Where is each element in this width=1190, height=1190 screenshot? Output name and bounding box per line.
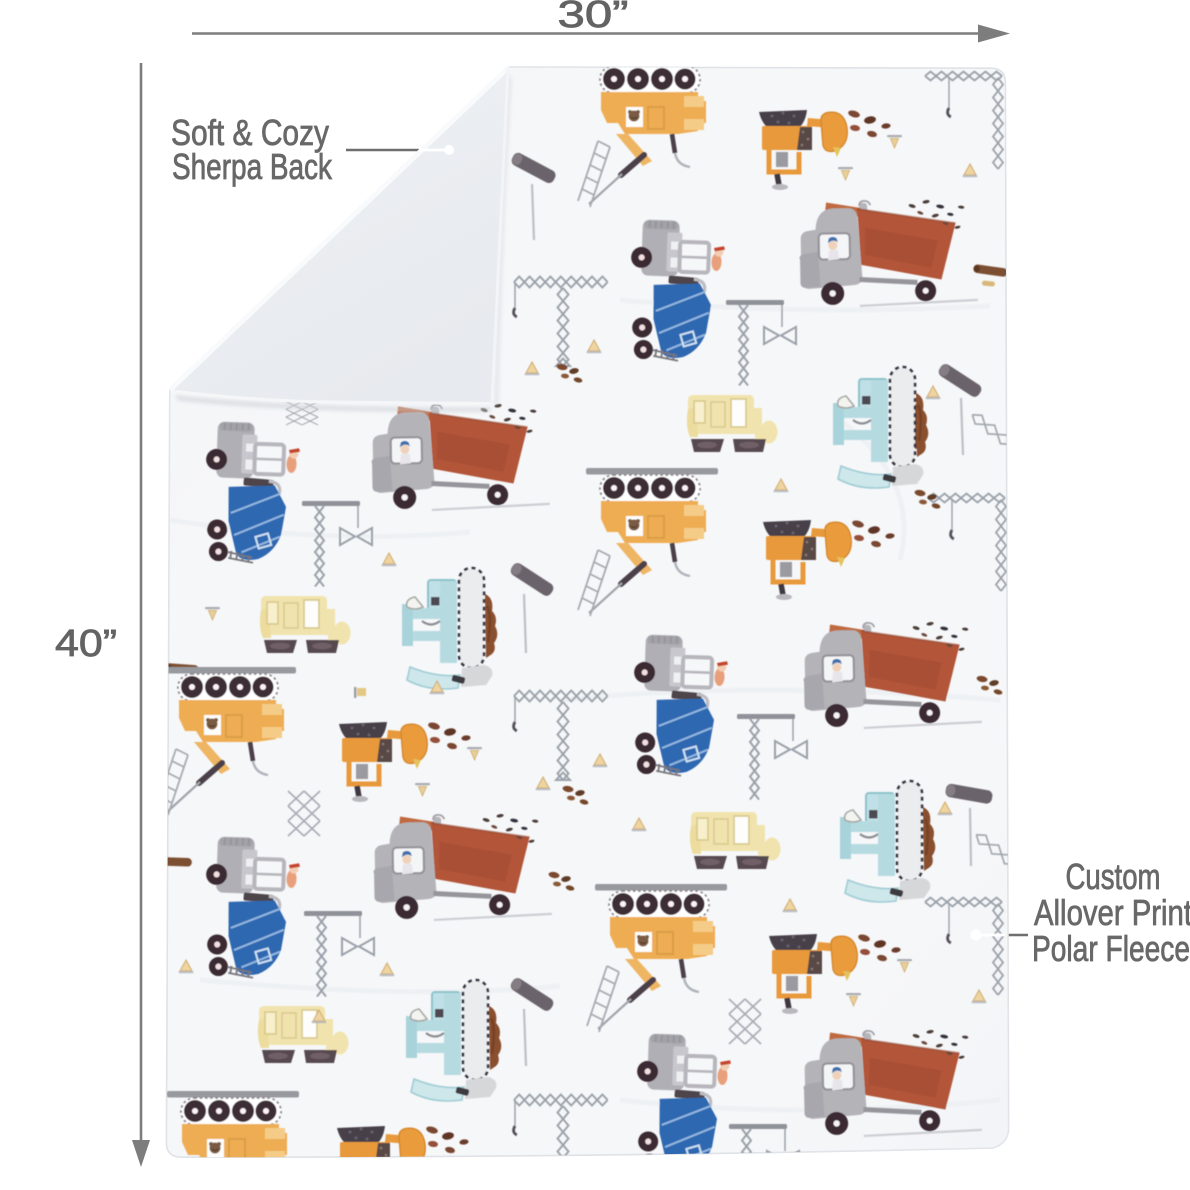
svg-text:Sherpa Back: Sherpa Back [172,146,333,187]
svg-text:Allover Print: Allover Print [1034,892,1190,933]
svg-text:Polar Fleece: Polar Fleece [1032,928,1190,969]
svg-text:Custom: Custom [1066,856,1161,897]
svg-text:30”: 30” [558,0,629,36]
svg-text:40”: 40” [55,623,117,665]
